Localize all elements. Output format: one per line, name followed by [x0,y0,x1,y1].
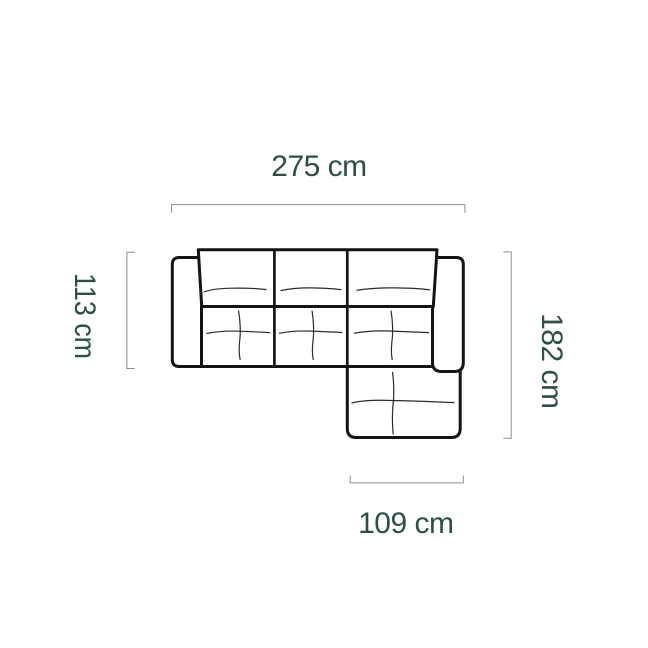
svg-text:182 cm: 182 cm [535,313,568,408]
svg-text:275 cm: 275 cm [271,150,366,183]
svg-text:113 cm: 113 cm [68,273,101,359]
svg-text:109 cm: 109 cm [358,507,453,540]
